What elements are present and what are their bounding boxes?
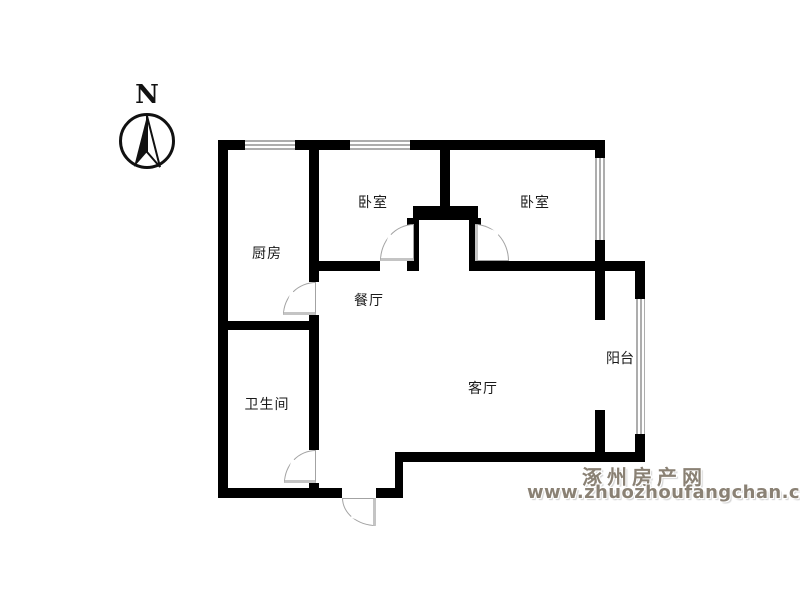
compass-rose-icon: [118, 108, 176, 172]
watermark-site-url: www.zhuozhoufangchan.com: [527, 482, 800, 503]
kitchen-window: [245, 140, 295, 150]
wall-kitchen-bath-divider: [218, 321, 319, 330]
wall-right-lower: [595, 410, 605, 462]
balcony-window: [636, 299, 645, 434]
entry-door: [342, 498, 376, 526]
wall-mid-vertical-middle: [309, 315, 319, 450]
wall-balcony-right-bottom: [635, 434, 645, 462]
wall-mid-vertical-lower: [309, 483, 319, 498]
bathroom-label: 卫生间: [245, 394, 290, 414]
bedroom2-door: [475, 224, 509, 261]
kitchen-door: [283, 282, 316, 315]
compass: N: [118, 82, 176, 176]
wall-exterior-bottom-left: [218, 488, 342, 498]
living-label: 客厅: [468, 378, 498, 398]
bathroom-door: [284, 450, 316, 483]
wall-right-middle: [595, 240, 605, 320]
bedroom1-door: [380, 224, 414, 261]
compass-north-label: N: [118, 82, 176, 108]
bedroom1-window: [350, 140, 410, 150]
kitchen-label: 厨房: [252, 243, 282, 263]
bedroom-left-label: 卧室: [358, 192, 388, 212]
bedroom-right-label: 卧室: [520, 192, 550, 212]
wall-bedroom2-bottom: [472, 261, 645, 271]
floorplan-canvas: 厨房 卧室 卧室 餐厅 卫生间 客厅 阳台 N 涿州房产网 www.zhuozh…: [0, 0, 800, 600]
balcony-label: 阳台: [606, 348, 634, 368]
wall-bedroom-divider: [440, 140, 450, 212]
wall-exterior-left: [218, 140, 228, 498]
bedroom2-window: [595, 158, 605, 240]
wall-balcony-right-top: [635, 261, 645, 299]
wall-right-top: [595, 140, 605, 158]
wall-bedroom1-bottom: [309, 261, 380, 271]
dining-label: 餐厅: [354, 290, 384, 310]
